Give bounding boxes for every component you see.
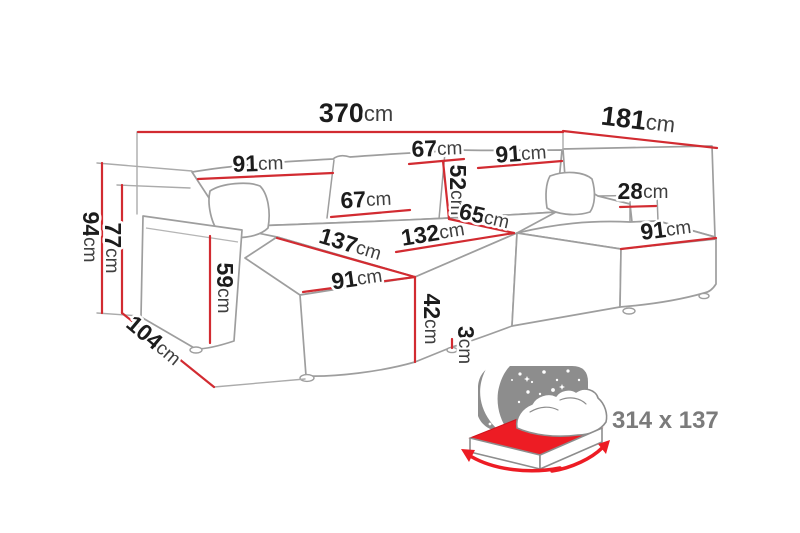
dim-line-armrest-width-28: [620, 206, 656, 207]
dimension-label-leg-height-3: 3cm: [453, 326, 479, 364]
dimension-label-back-top-cushion-67: 67cm: [411, 134, 463, 162]
right-chaise-inner-face: [512, 233, 621, 326]
dimension-label-total-width-370: 370cm: [319, 98, 393, 128]
dimension-label-back-right-seat-91: 91cm: [495, 138, 548, 167]
sleeper-function-icon: 314 x 137: [461, 364, 719, 471]
dimension-label-back-left-seat-91: 91cm: [232, 149, 284, 177]
dimension-label-armrest-width-28: 28cm: [618, 178, 669, 204]
left-chaise-front-face: [300, 277, 415, 376]
sofa-dimension-diagram: 370cm181cm91cm67cm91cm52cm67cm65cm132cm1…: [0, 0, 800, 533]
sleeping-area-label: 314 x 137: [612, 407, 719, 434]
dimension-label-seat-height-42: 42cm: [419, 294, 445, 345]
diagram-page: 370cm181cm91cm67cm91cm52cm67cm65cm132cm1…: [0, 0, 800, 533]
dimension-label-back-cushion-67: 67cm: [340, 185, 392, 214]
sofa-foot: [190, 347, 202, 353]
sofa-foot: [300, 375, 314, 382]
sofa-foot: [623, 308, 635, 314]
dimension-label-right-depth-181: 181cm: [599, 101, 676, 140]
pillow-right: [546, 172, 594, 214]
dimension-label-arm-front-height-59: 59cm: [212, 263, 238, 314]
sofa-foot: [699, 293, 709, 298]
dimension-label-armrest-height-77: 77cm: [100, 223, 126, 274]
